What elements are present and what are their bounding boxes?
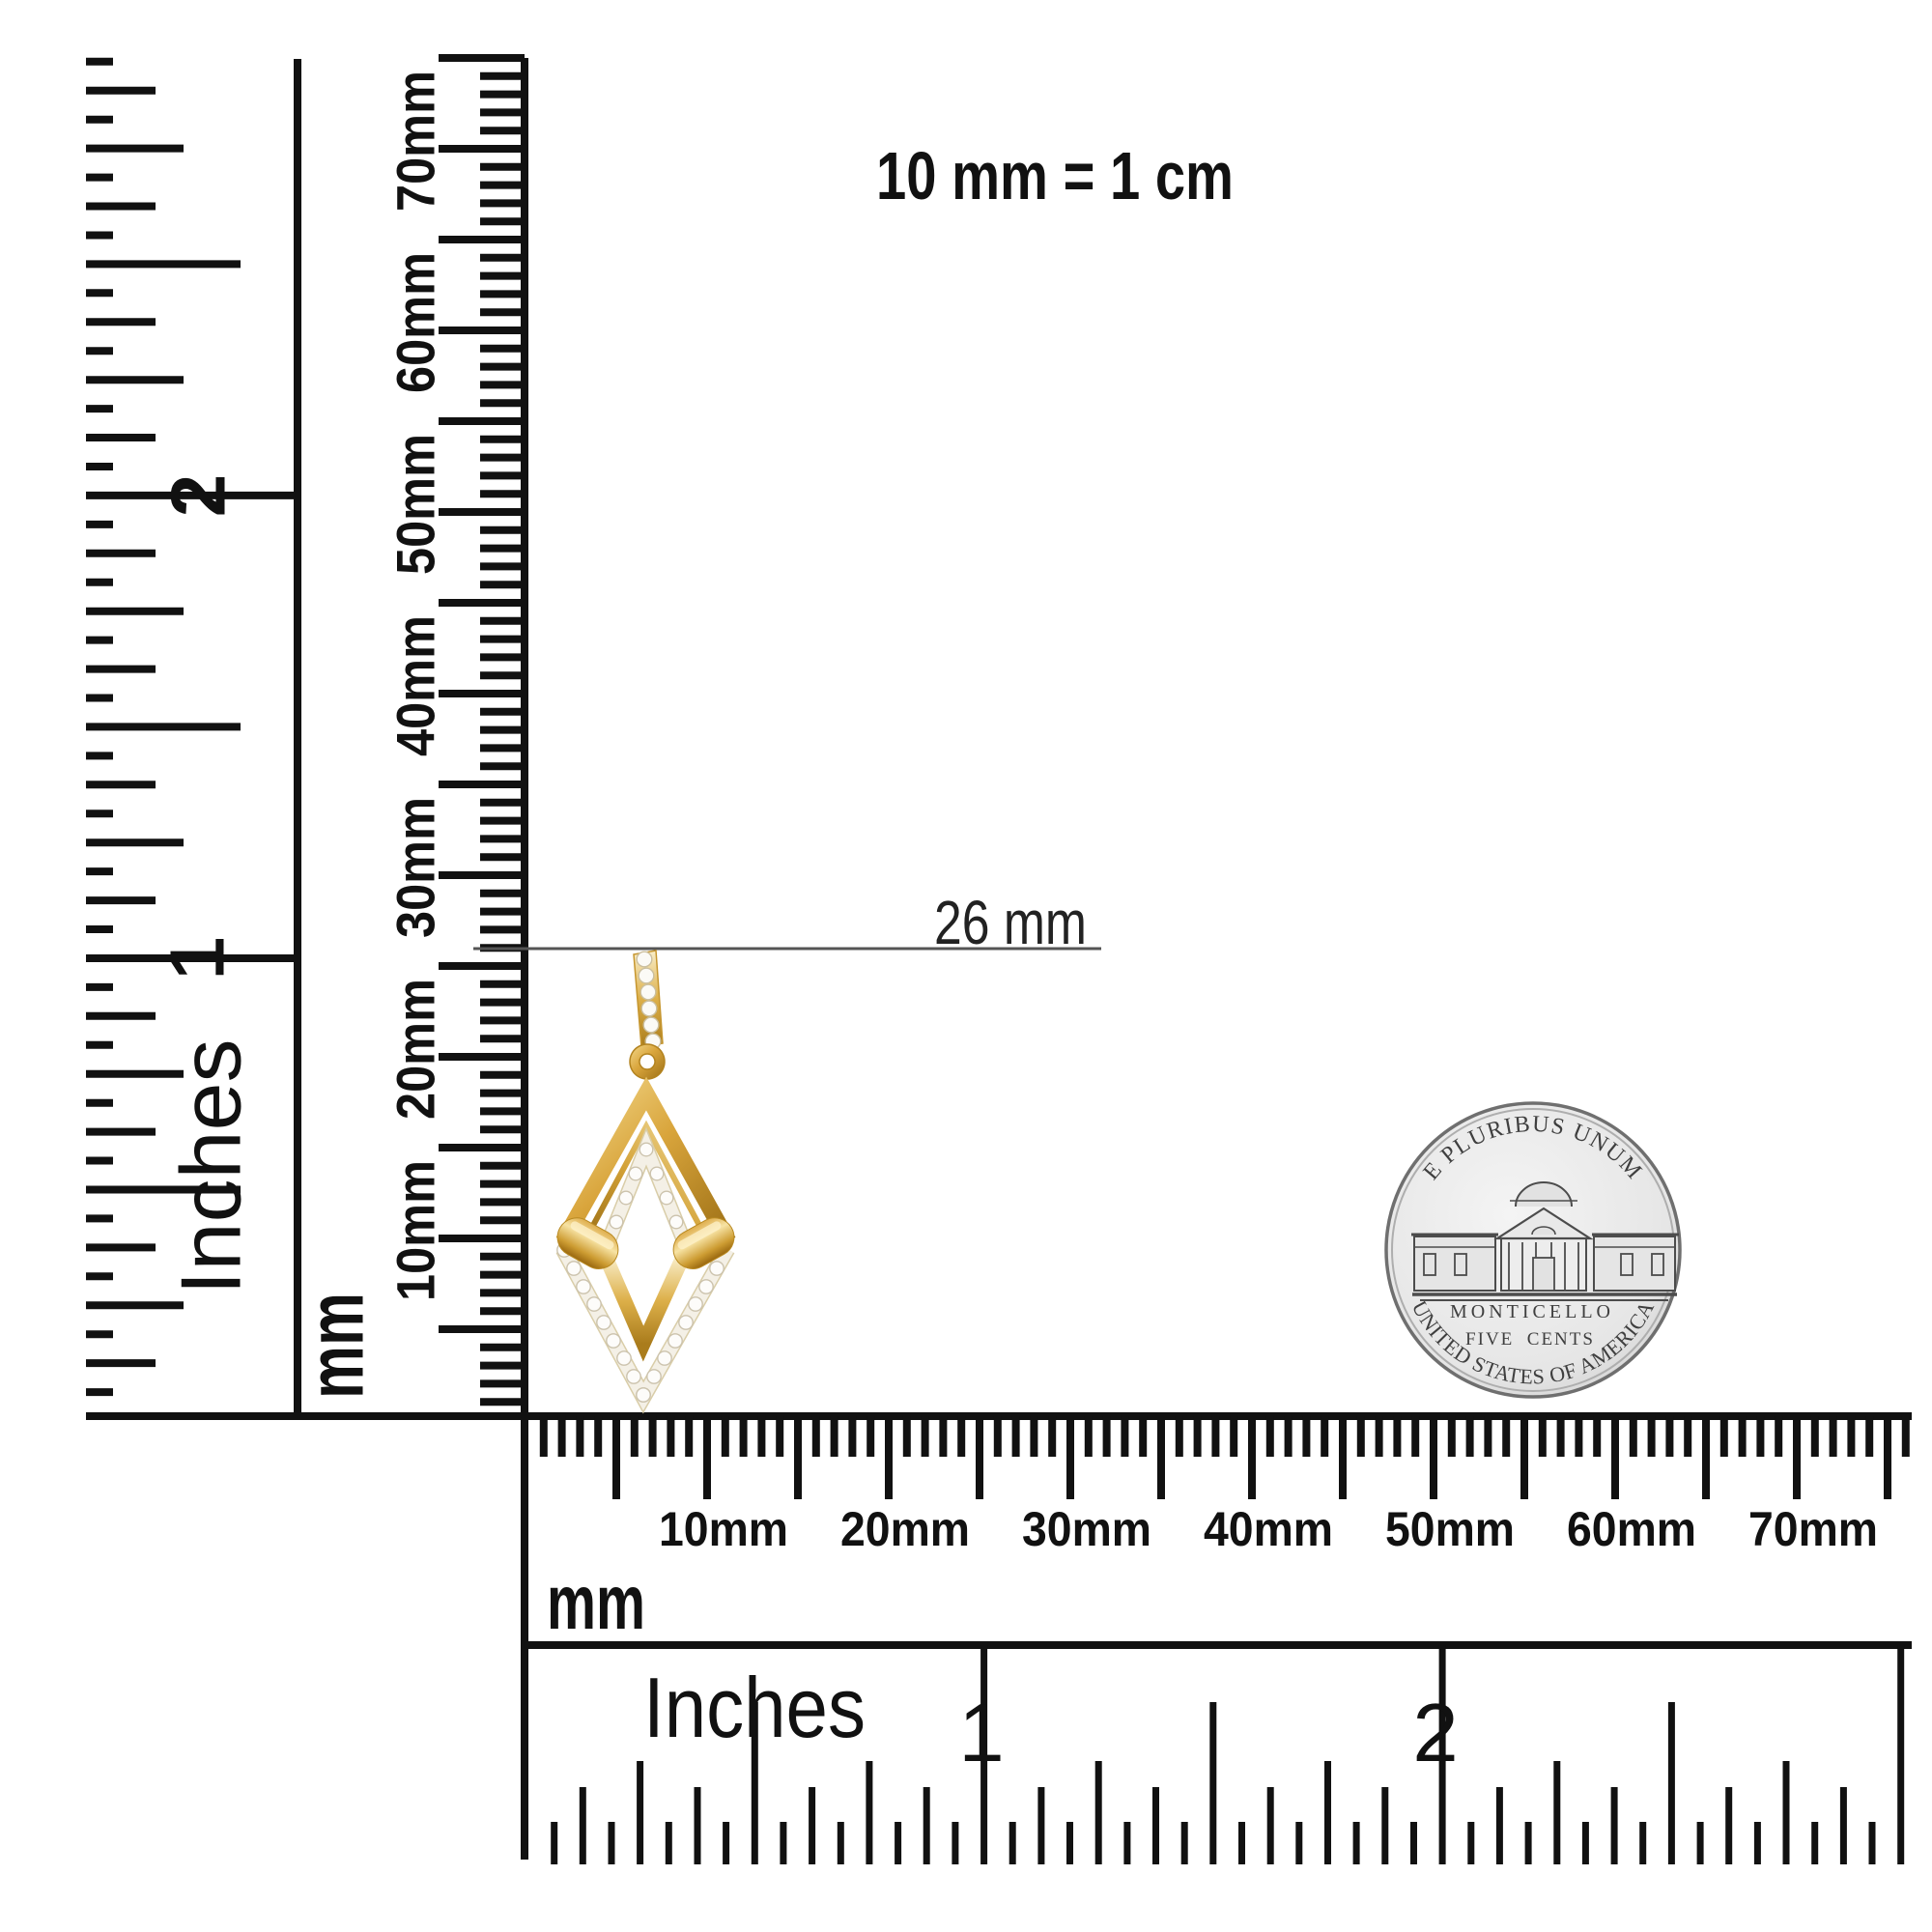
- svg-text:40mm: 40mm: [385, 615, 446, 756]
- svg-text:MONTICELLO: MONTICELLO: [1450, 1301, 1614, 1322]
- svg-text:20mm: 20mm: [840, 1502, 970, 1556]
- svg-text:10mm: 10mm: [385, 1160, 446, 1301]
- svg-text:50mm: 50mm: [1385, 1502, 1515, 1556]
- svg-text:10mm: 10mm: [659, 1502, 788, 1556]
- svg-text:60mm: 60mm: [1567, 1502, 1696, 1556]
- svg-text:50mm: 50mm: [385, 434, 446, 575]
- svg-text:Inches: Inches: [643, 1660, 866, 1755]
- svg-text:2: 2: [1412, 1688, 1458, 1779]
- svg-text:10 mm = 1 cm: 10 mm = 1 cm: [876, 138, 1234, 213]
- svg-text:mm: mm: [547, 1559, 645, 1645]
- svg-text:1: 1: [958, 1688, 1004, 1779]
- svg-text:FIVE CENTS: FIVE CENTS: [1465, 1329, 1595, 1350]
- svg-text:70mm: 70mm: [385, 71, 446, 212]
- svg-text:30mm: 30mm: [1022, 1502, 1151, 1556]
- svg-text:2: 2: [156, 474, 241, 518]
- svg-text:1: 1: [155, 937, 241, 980]
- svg-text:mm: mm: [293, 1293, 381, 1399]
- svg-text:Inches: Inches: [163, 1039, 259, 1295]
- svg-text:26 mm: 26 mm: [934, 888, 1087, 957]
- svg-text:70mm: 70mm: [1748, 1502, 1878, 1556]
- svg-text:30mm: 30mm: [385, 797, 446, 938]
- svg-text:20mm: 20mm: [385, 979, 446, 1120]
- svg-text:40mm: 40mm: [1204, 1502, 1333, 1556]
- svg-text:60mm: 60mm: [385, 252, 446, 393]
